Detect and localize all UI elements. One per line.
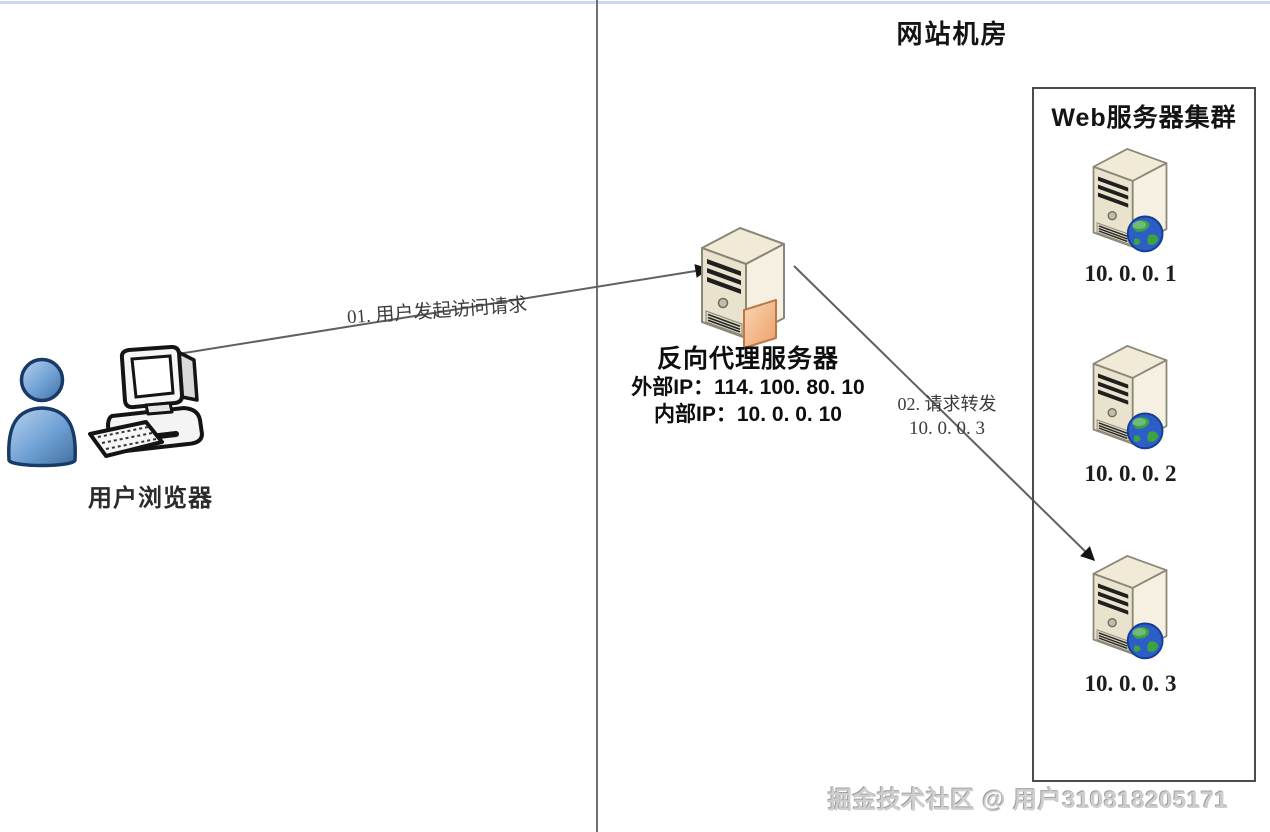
proxy-name: 反向代理服务器	[596, 345, 900, 374]
web-server-icon-2	[1078, 333, 1182, 455]
proxy-server-icon	[688, 214, 798, 350]
web-server-icon-1	[1078, 136, 1182, 258]
web-server-icon-3	[1078, 543, 1182, 665]
proxy-labels: 反向代理服务器 外部IP：114. 100. 80. 10 内部IP：10. 0…	[596, 345, 900, 428]
server-ip-label-3: 10. 0. 0. 3	[1063, 671, 1198, 697]
desktop-computer-icon	[86, 340, 218, 474]
person-icon	[2, 355, 86, 469]
diagram-canvas: 网站机房 用户浏览器 01. 用户发起访问请求	[0, 0, 1270, 832]
proxy-external-ip: 外部IP：114. 100. 80. 10	[596, 374, 900, 401]
globe-icon	[1128, 624, 1163, 659]
flow-request-label: 01. 用户发起访问请求	[329, 289, 544, 331]
globe-icon	[1128, 217, 1163, 252]
flow-forward-label: 02. 请求转发 10. 0. 0. 3	[868, 392, 1026, 441]
datacenter-title: 网站机房	[845, 14, 1060, 51]
flow-forward-target-ip: 10. 0. 0. 3	[868, 416, 1026, 441]
top-border-line	[0, 1, 1270, 4]
watermark: 掘金技术社区 @ 用户310818205171	[828, 780, 1270, 815]
globe-icon	[1128, 414, 1163, 449]
client-label: 用户浏览器	[58, 478, 243, 513]
flow-forward-text: 02. 请求转发	[868, 392, 1026, 416]
cluster-title: Web服务器集群	[1034, 89, 1254, 134]
proxy-internal-ip: 内部IP：10. 0. 0. 10	[596, 401, 900, 428]
server-ip-label-2: 10. 0. 0. 2	[1063, 461, 1198, 487]
server-ip-label-1: 10. 0. 0. 1	[1063, 261, 1198, 287]
